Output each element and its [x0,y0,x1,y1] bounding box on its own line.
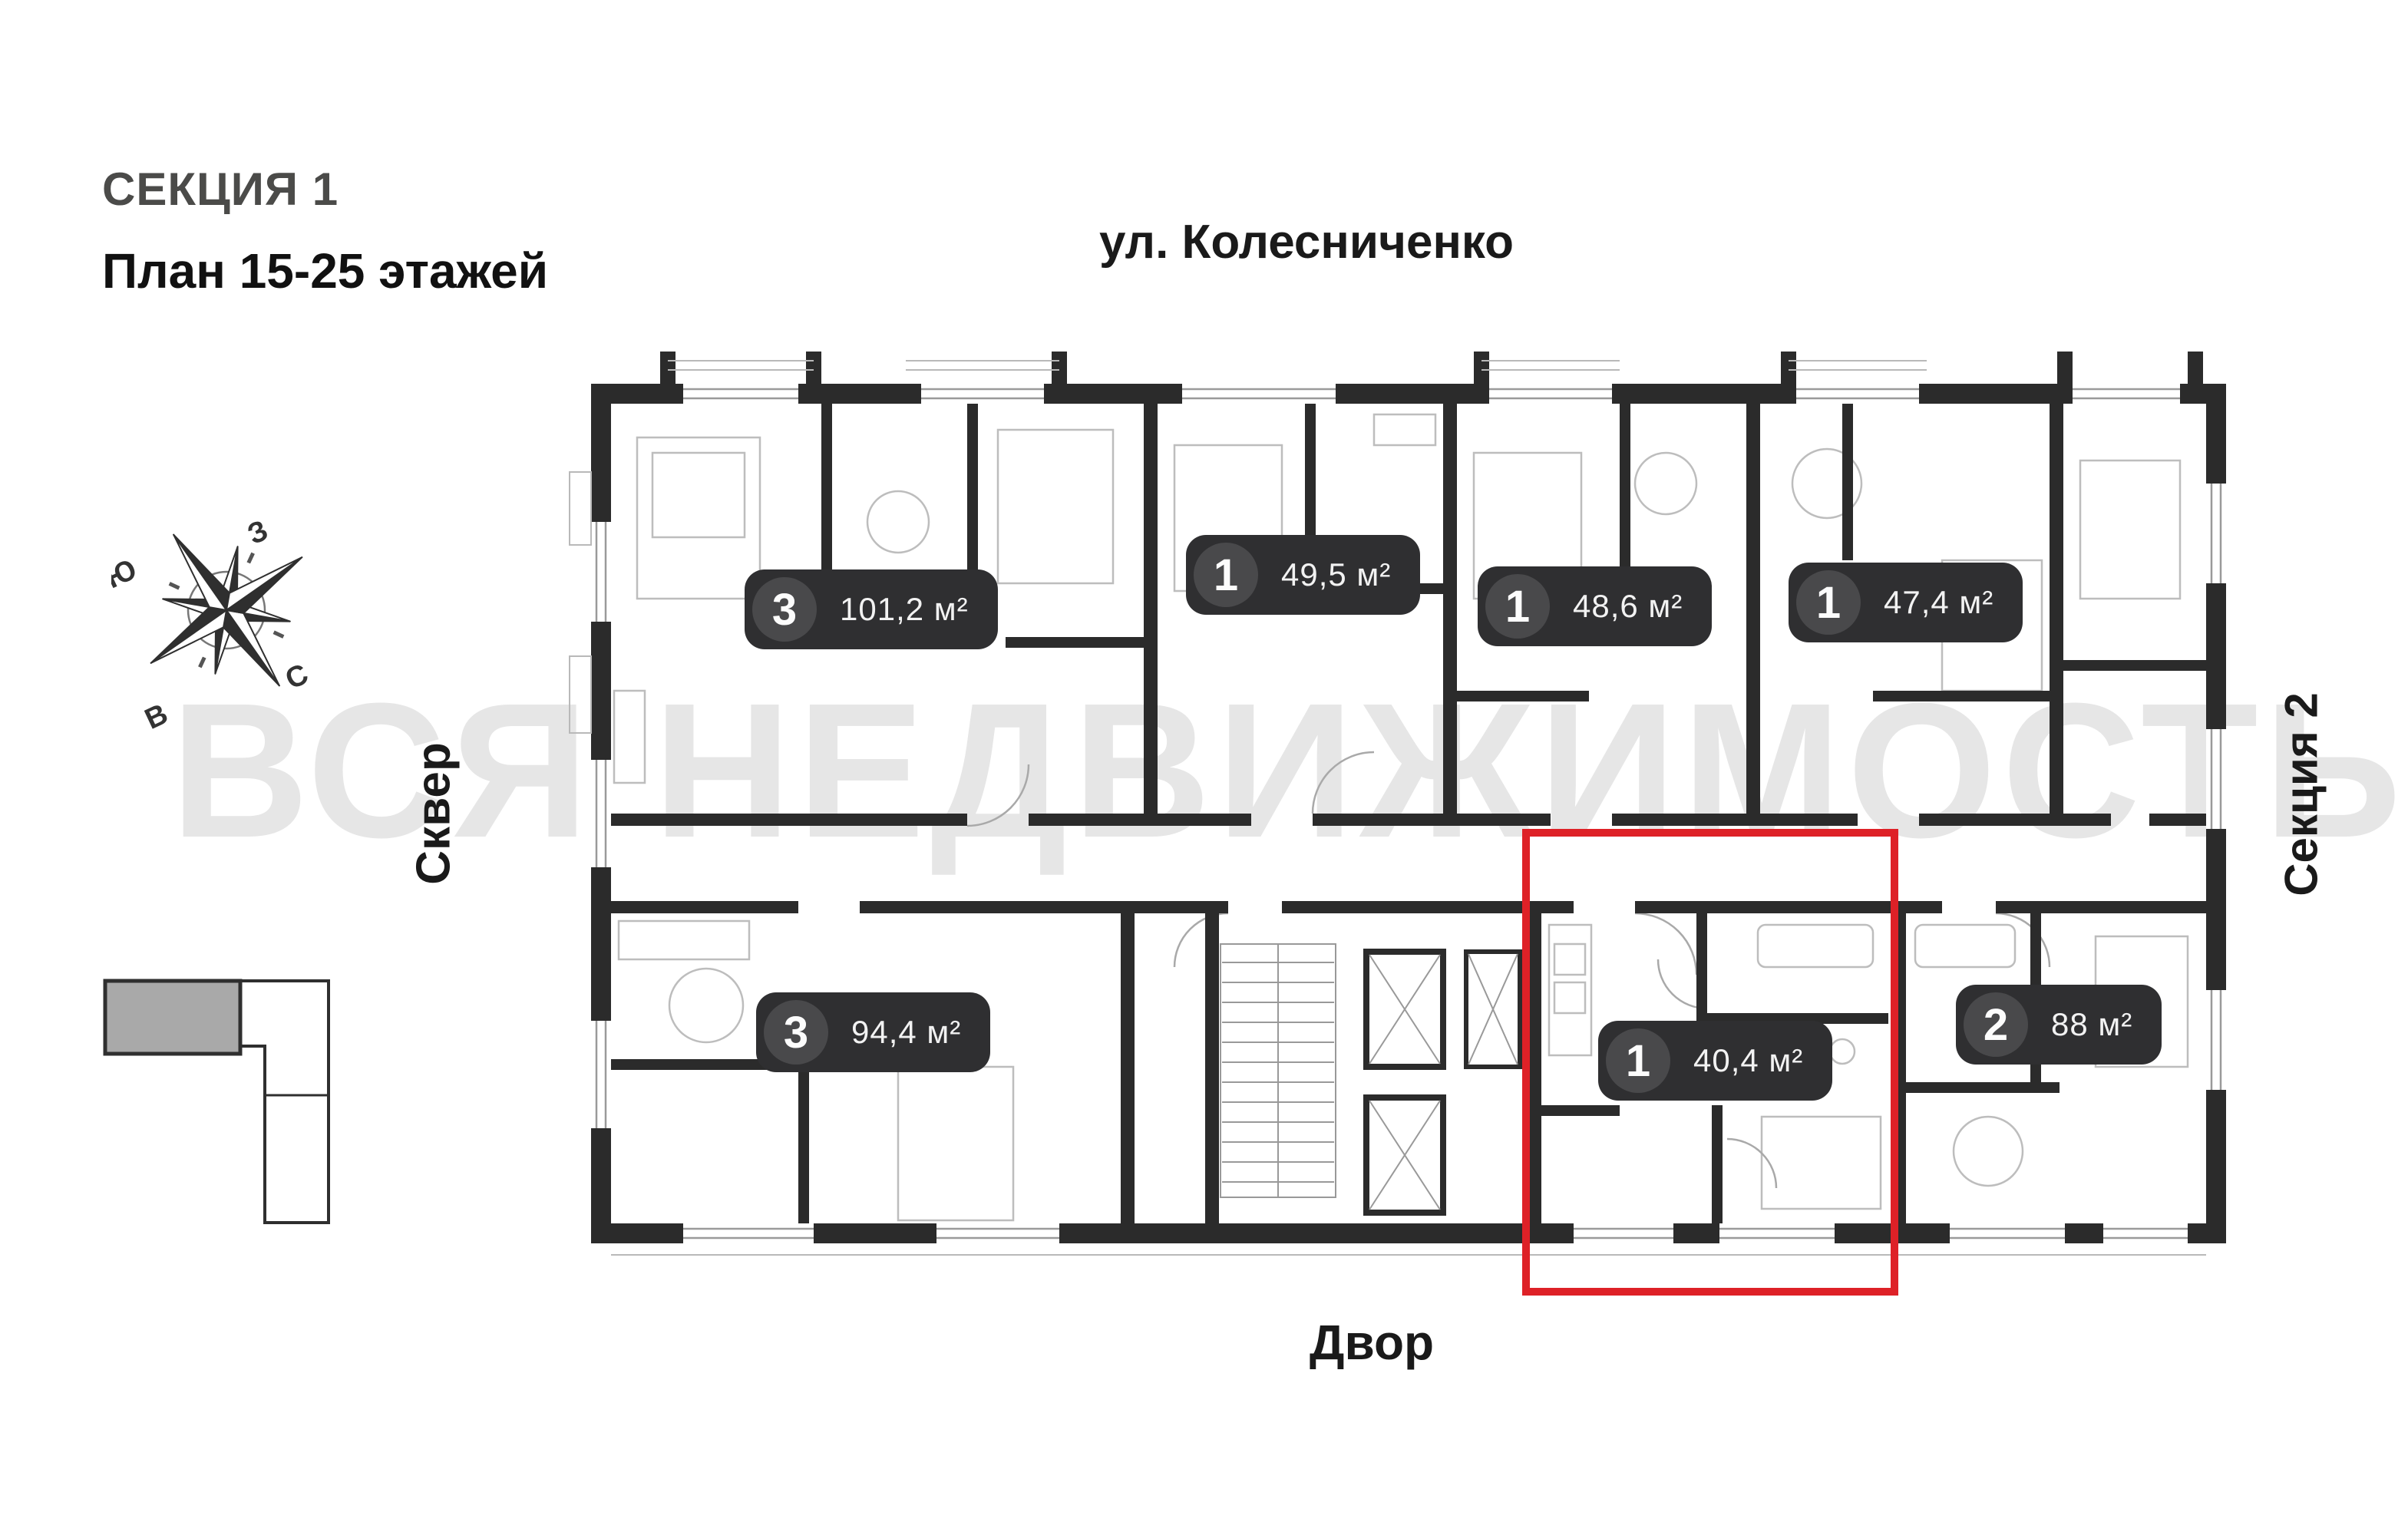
street-label: ул. Колесниченко [1099,215,1514,269]
plan-floors-subtitle: План 15-25 этажей [102,243,548,299]
apartment-area: 47,4 м² [1884,584,1993,621]
floor-plan-svg [568,330,2241,1305]
compass-star [111,487,342,738]
rooms-count: 3 [764,1000,828,1065]
rooms-count: 3 [752,577,817,642]
elevator-icon [1366,952,1520,1213]
rooms-count: 1 [1485,574,1550,639]
stairs-icon [1221,944,1336,1197]
yard-label: Двор [1310,1314,1434,1371]
left-area-label: Сквер [407,742,461,884]
compass-label-north: С [281,658,314,696]
compass-label-south: Ю [111,553,142,596]
right-section-label: Секция 2 [2275,692,2328,896]
apartment-area: 88 м² [2051,1006,2132,1043]
apartment-badge-47-4[interactable]: 1 47,4 м² [1789,563,2023,642]
apartment-badge-49-5[interactable]: 1 49,5 м² [1186,535,1420,615]
rooms-count: 1 [1194,543,1258,607]
rooms-count: 1 [1796,570,1861,635]
apartment-badge-88[interactable]: 2 88 м² [1956,985,2162,1065]
apartment-badge-48-6[interactable]: 1 48,6 м² [1478,566,1712,646]
rooms-count: 1 [1606,1028,1670,1093]
compass-label-west: З [243,514,273,551]
apartment-area: 48,6 м² [1573,588,1683,625]
apartment-badge-40-4-highlighted[interactable]: 1 40,4 м² [1598,1021,1832,1101]
section-title: СЕКЦИЯ 1 [102,163,339,216]
compass-label-east: В [140,698,173,736]
apartment-badge-101-2[interactable]: 3 101,2 м² [745,569,998,649]
building-locator [96,971,342,1232]
locator-other-sections [240,981,329,1223]
apartment-area: 101,2 м² [840,591,969,628]
apartment-area: 40,4 м² [1693,1042,1803,1079]
apartment-area: 94,4 м² [851,1014,961,1051]
rooms-count: 2 [1964,992,2028,1057]
apartment-area: 49,5 м² [1281,556,1391,593]
apartment-badge-94-4[interactable]: 3 94,4 м² [756,992,990,1072]
locator-current-section [105,981,240,1054]
compass-icon: Ю З С В [111,487,342,741]
